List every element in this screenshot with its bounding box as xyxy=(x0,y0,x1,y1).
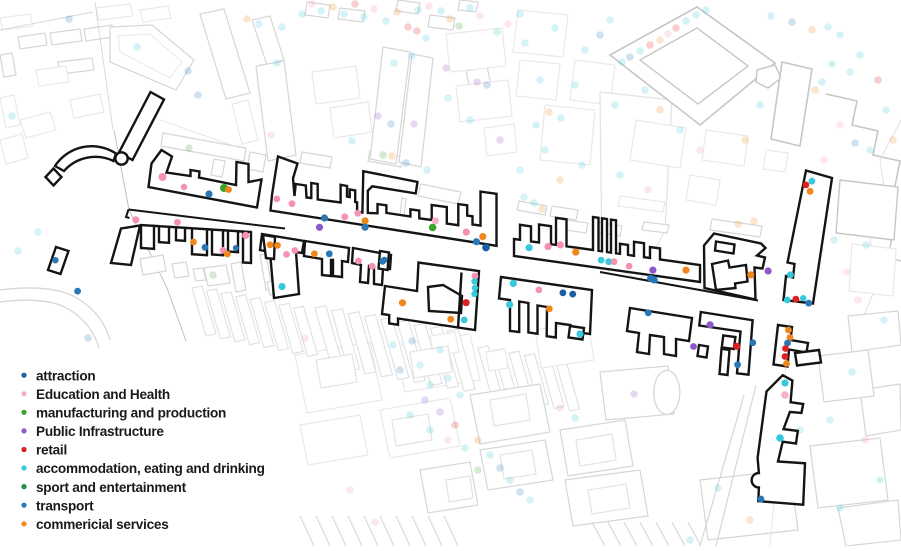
svg-text:sport and entertainment: sport and entertainment xyxy=(36,480,187,495)
svg-text:transport: transport xyxy=(36,498,94,513)
svg-text:Education and Health: Education and Health xyxy=(36,387,170,402)
svg-text:commericial services: commericial services xyxy=(36,517,169,532)
svg-text:accommodation, eating and drin: accommodation, eating and drinking xyxy=(36,461,265,476)
svg-text:Public Infrastructure: Public Infrastructure xyxy=(36,424,164,439)
svg-text:retail: retail xyxy=(36,443,67,458)
svg-text:attraction: attraction xyxy=(36,368,95,383)
svg-text:manufacturing and production: manufacturing and production xyxy=(36,406,226,421)
